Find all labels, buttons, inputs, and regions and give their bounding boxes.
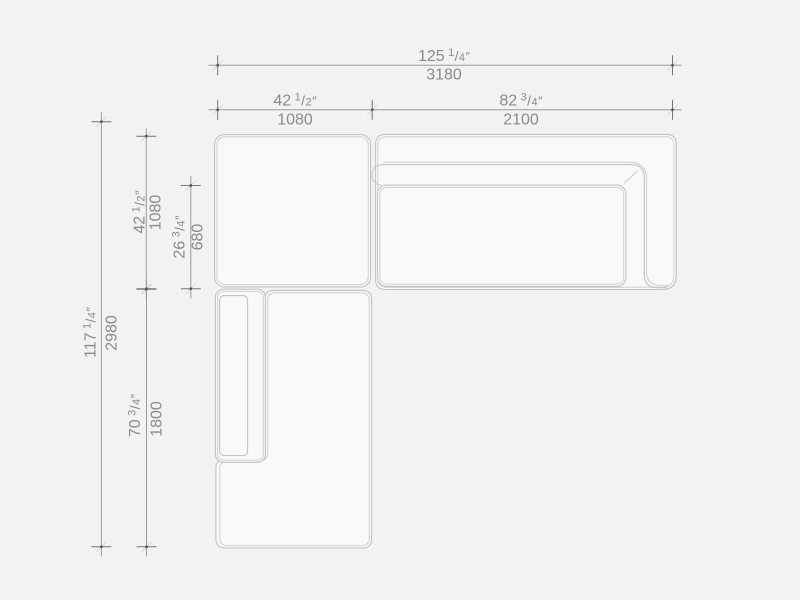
svg-text:1800: 1800: [149, 401, 166, 437]
svg-text:2100: 2100: [503, 111, 539, 128]
svg-text:2980: 2980: [104, 315, 121, 351]
svg-text:1080: 1080: [147, 195, 164, 231]
svg-text:3180: 3180: [426, 67, 462, 84]
svg-text:680: 680: [190, 224, 207, 251]
svg-text:1080: 1080: [277, 111, 313, 128]
